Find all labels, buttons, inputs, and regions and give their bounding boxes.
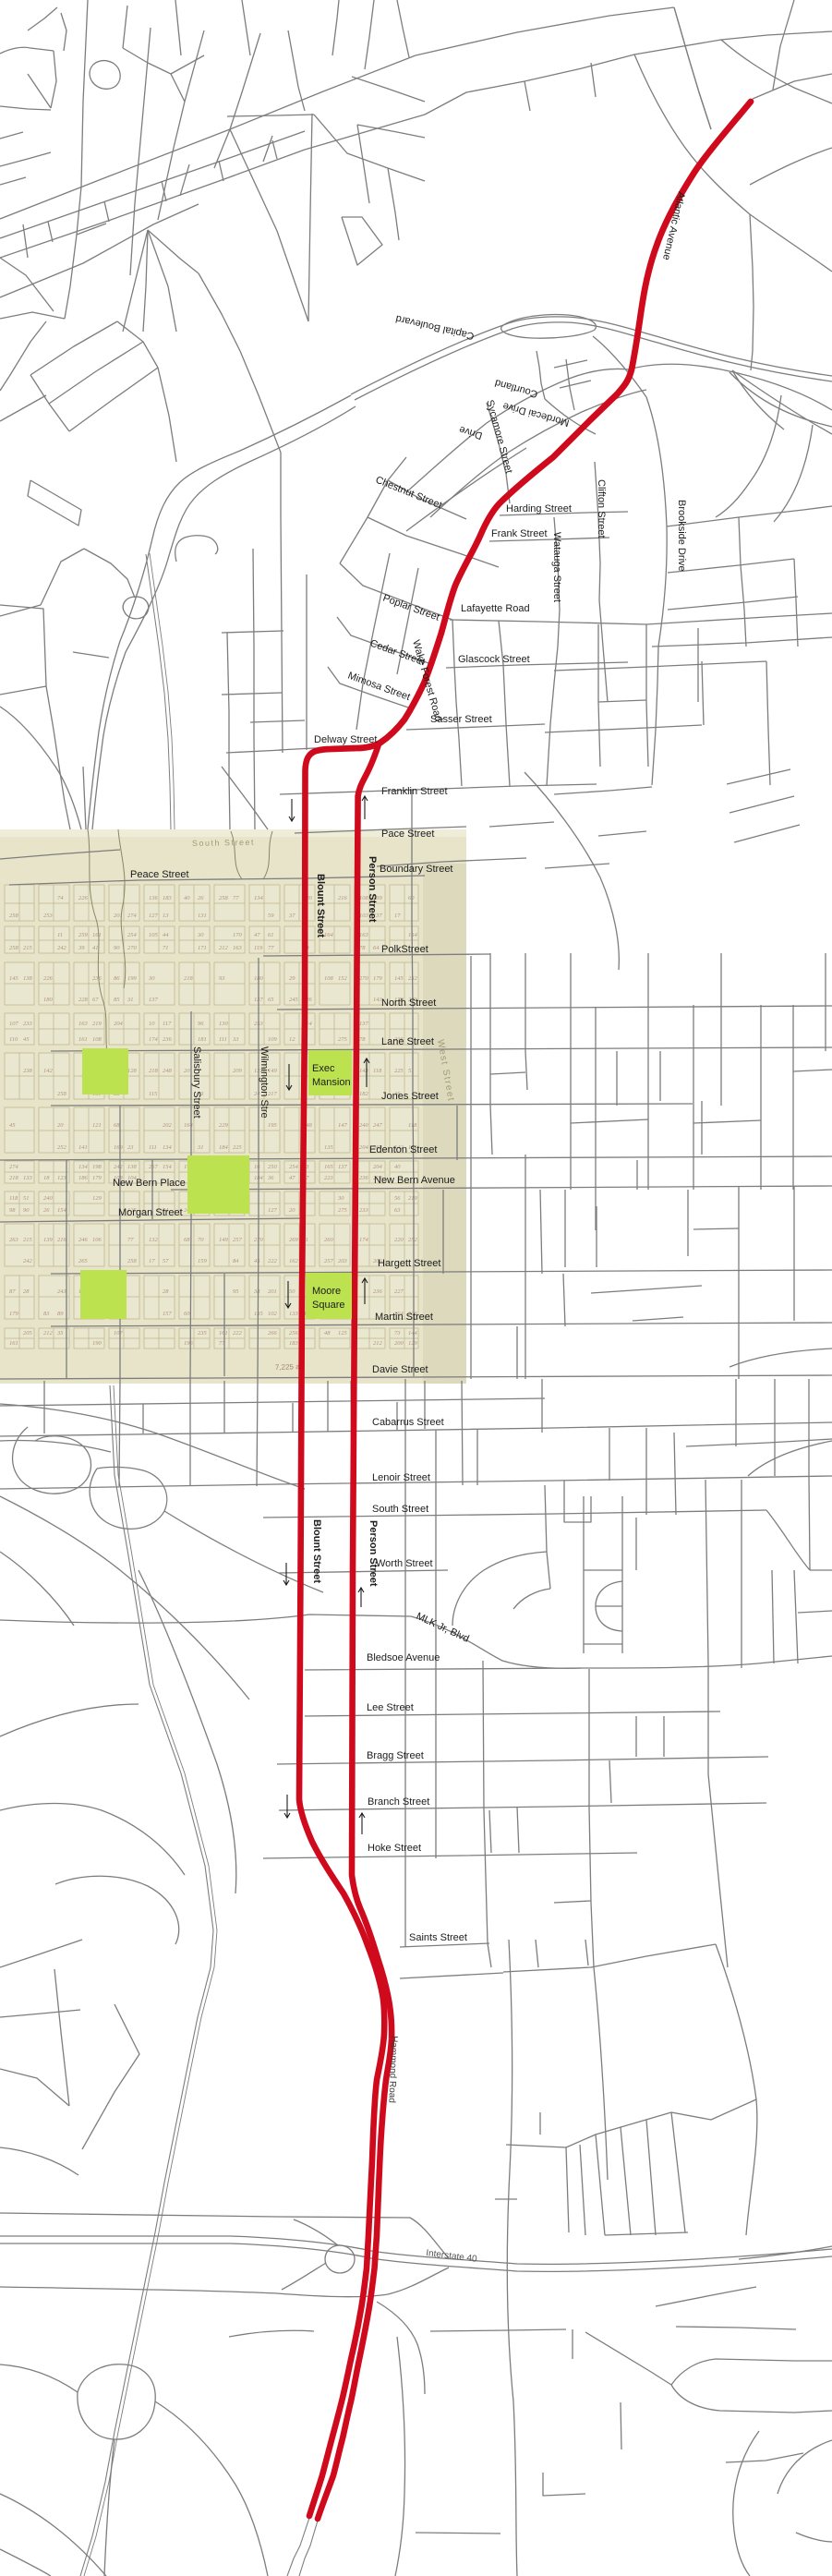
- svg-text:181: 181: [198, 1036, 207, 1043]
- svg-text:28: 28: [23, 1288, 30, 1295]
- svg-text:183: 183: [163, 895, 173, 901]
- svg-text:30: 30: [337, 1195, 344, 1202]
- svg-text:Salisbury Street: Salisbury Street: [191, 1046, 202, 1119]
- svg-text:248: 248: [163, 1068, 173, 1074]
- svg-text:180: 180: [43, 997, 54, 1003]
- svg-text:137: 137: [359, 1021, 369, 1027]
- svg-text:Lane Street: Lane Street: [381, 1036, 434, 1047]
- svg-text:12: 12: [289, 1036, 295, 1043]
- svg-text:47: 47: [254, 932, 260, 938]
- svg-text:108: 108: [324, 975, 334, 982]
- svg-text:246: 246: [78, 1237, 89, 1243]
- svg-text:203: 203: [338, 1258, 348, 1264]
- svg-text:233: 233: [359, 1207, 369, 1214]
- svg-text:56: 56: [394, 1195, 401, 1202]
- svg-text:77: 77: [268, 945, 274, 951]
- svg-text:Bragg Street: Bragg Street: [367, 1750, 424, 1761]
- svg-text:45: 45: [9, 1122, 16, 1129]
- svg-text:218: 218: [9, 1175, 19, 1181]
- svg-text:78: 78: [359, 945, 366, 951]
- svg-text:Person Street: Person Street: [368, 1520, 379, 1587]
- svg-text:212: 212: [219, 945, 229, 951]
- svg-text:111: 111: [149, 1144, 157, 1151]
- svg-text:161: 161: [92, 932, 102, 938]
- svg-text:40: 40: [394, 1164, 401, 1170]
- svg-text:Edenton Street: Edenton Street: [369, 1144, 437, 1155]
- svg-text:225: 225: [233, 1144, 243, 1151]
- svg-text:Bledsoe Avenue: Bledsoe Avenue: [367, 1652, 440, 1663]
- svg-text:North Street: North Street: [381, 998, 436, 1009]
- svg-text:252: 252: [408, 1237, 418, 1243]
- svg-text:226: 226: [43, 975, 54, 982]
- svg-text:252: 252: [57, 1144, 67, 1151]
- svg-text:Glascock Street: Glascock Street: [458, 654, 530, 665]
- svg-text:Moore: Moore: [312, 1286, 341, 1297]
- svg-text:200: 200: [394, 1340, 404, 1347]
- svg-text:67: 67: [92, 997, 99, 1003]
- svg-text:183: 183: [289, 1340, 299, 1347]
- svg-text:48: 48: [324, 1330, 331, 1336]
- svg-text:235: 235: [198, 1330, 208, 1336]
- svg-text:83: 83: [43, 1311, 50, 1317]
- svg-text:138: 138: [23, 975, 33, 982]
- svg-text:Blount Street: Blount Street: [315, 874, 326, 937]
- svg-text:204: 204: [114, 1021, 124, 1027]
- svg-text:95: 95: [233, 1288, 239, 1295]
- svg-text:65: 65: [268, 997, 274, 1003]
- svg-text:Clifton Street: Clifton Street: [596, 479, 607, 538]
- svg-text:107: 107: [9, 1021, 19, 1027]
- svg-text:Brookside Drive: Brookside Drive: [676, 500, 687, 572]
- svg-text:162: 162: [289, 1258, 299, 1264]
- svg-text:38: 38: [253, 1288, 260, 1295]
- svg-text:218: 218: [149, 1068, 159, 1074]
- svg-text:154: 154: [57, 1207, 67, 1214]
- svg-text:Morgan Street: Morgan Street: [118, 1207, 183, 1218]
- svg-text:258: 258: [57, 1091, 67, 1097]
- svg-text:60: 60: [184, 1311, 190, 1317]
- svg-text:161: 161: [219, 1330, 228, 1336]
- svg-text:134: 134: [163, 1144, 173, 1151]
- svg-text:Delway Street: Delway Street: [314, 734, 377, 745]
- svg-text:257: 257: [149, 1164, 159, 1170]
- svg-text:74: 74: [57, 895, 64, 901]
- svg-text:161: 161: [78, 1036, 88, 1043]
- svg-text:263: 263: [9, 1237, 19, 1243]
- svg-text:Martin Street: Martin Street: [375, 1312, 433, 1323]
- svg-text:222: 222: [233, 1330, 243, 1336]
- svg-text:179: 179: [9, 1311, 19, 1317]
- svg-text:109: 109: [268, 1036, 278, 1043]
- svg-text:129: 129: [408, 1340, 418, 1347]
- svg-text:236: 236: [373, 1288, 383, 1295]
- svg-text:30: 30: [197, 932, 204, 938]
- svg-text:219: 219: [408, 1195, 418, 1202]
- svg-text:142: 142: [43, 1068, 54, 1074]
- svg-text:Hargett Street: Hargett Street: [378, 1258, 440, 1269]
- svg-text:Pace Street: Pace Street: [381, 828, 434, 840]
- svg-text:220: 220: [394, 1237, 404, 1243]
- svg-text:50: 50: [289, 1288, 295, 1295]
- svg-text:20: 20: [57, 1122, 64, 1129]
- svg-text:143: 143: [359, 1068, 369, 1074]
- svg-text:222: 222: [268, 1258, 278, 1264]
- svg-text:110: 110: [9, 1036, 18, 1043]
- svg-text:133: 133: [23, 1175, 33, 1181]
- svg-text:212: 212: [43, 1330, 54, 1336]
- svg-text:171: 171: [198, 945, 207, 951]
- svg-text:164: 164: [184, 1122, 194, 1129]
- svg-text:149: 149: [219, 1237, 229, 1243]
- svg-text:229: 229: [219, 1122, 229, 1129]
- svg-text:98: 98: [9, 1207, 16, 1214]
- svg-text:215: 215: [23, 945, 33, 951]
- svg-text:163: 163: [78, 1021, 89, 1027]
- svg-text:137: 137: [149, 997, 159, 1003]
- svg-text:Franklin Street: Franklin Street: [381, 786, 448, 797]
- svg-text:139: 139: [43, 1237, 54, 1243]
- svg-text:77: 77: [233, 895, 239, 901]
- svg-text:216: 216: [338, 895, 348, 901]
- svg-text:96: 96: [198, 1021, 204, 1027]
- svg-text:199: 199: [127, 975, 138, 982]
- svg-text:73: 73: [394, 1330, 401, 1336]
- svg-text:215: 215: [23, 1237, 33, 1243]
- svg-text:165: 165: [324, 1164, 334, 1170]
- svg-text:147: 147: [338, 1122, 348, 1129]
- svg-text:105: 105: [149, 932, 159, 938]
- svg-text:44: 44: [163, 932, 169, 938]
- svg-text:Peace Street: Peace Street: [130, 869, 189, 880]
- svg-text:108: 108: [92, 1036, 102, 1043]
- svg-text:71: 71: [163, 945, 169, 951]
- svg-text:141: 141: [78, 1144, 88, 1151]
- svg-text:205: 205: [23, 1330, 33, 1336]
- svg-text:157: 157: [163, 1311, 173, 1317]
- svg-text:154: 154: [408, 932, 418, 938]
- svg-text:137: 137: [338, 1164, 348, 1170]
- svg-text:145: 145: [394, 975, 404, 982]
- svg-text:Harding Street: Harding Street: [506, 503, 572, 514]
- svg-text:204: 204: [373, 1164, 383, 1170]
- svg-text:Exec: Exec: [312, 1063, 335, 1074]
- svg-text:119: 119: [254, 945, 263, 951]
- svg-text:256: 256: [289, 1330, 299, 1336]
- svg-text:45: 45: [23, 1036, 30, 1043]
- svg-text:70: 70: [198, 1237, 204, 1243]
- svg-text:269: 269: [289, 1237, 299, 1243]
- svg-text:127: 127: [268, 1207, 278, 1214]
- svg-text:61: 61: [268, 932, 274, 938]
- svg-text:Branch Street: Branch Street: [368, 1796, 429, 1808]
- svg-text:242: 242: [114, 1164, 124, 1170]
- svg-text:258: 258: [219, 895, 229, 901]
- svg-text:51: 51: [23, 1195, 30, 1202]
- svg-text:36: 36: [267, 1175, 274, 1181]
- svg-text:247: 247: [373, 1122, 383, 1129]
- svg-text:127: 127: [149, 913, 159, 919]
- svg-text:144: 144: [408, 1330, 418, 1336]
- svg-text:270: 270: [127, 945, 138, 951]
- svg-text:29: 29: [289, 975, 295, 982]
- svg-text:11: 11: [57, 932, 63, 938]
- svg-text:123: 123: [57, 1175, 67, 1181]
- svg-text:128: 128: [127, 1068, 138, 1074]
- svg-text:68: 68: [184, 1237, 190, 1243]
- svg-text:226: 226: [78, 895, 89, 901]
- svg-text:Worth Street: Worth Street: [376, 1558, 433, 1569]
- svg-text:64: 64: [373, 945, 380, 951]
- svg-text:145: 145: [9, 975, 19, 982]
- svg-text:Lee Street: Lee Street: [367, 1702, 414, 1713]
- svg-text:16: 16: [254, 1164, 260, 1170]
- svg-text:18: 18: [43, 1175, 50, 1181]
- svg-text:265: 265: [78, 1258, 89, 1264]
- svg-text:26: 26: [43, 1207, 50, 1214]
- svg-text:275: 275: [338, 1207, 348, 1214]
- svg-text:118: 118: [373, 1068, 382, 1074]
- svg-text:Mansion: Mansion: [312, 1077, 351, 1088]
- svg-text:161: 161: [9, 1340, 18, 1347]
- svg-text:209: 209: [233, 1068, 243, 1074]
- svg-text:68: 68: [114, 1122, 120, 1129]
- svg-text:266: 266: [268, 1330, 278, 1336]
- svg-text:Saints Street: Saints Street: [409, 1932, 467, 1943]
- svg-text:Boundary Street: Boundary Street: [380, 864, 453, 875]
- svg-text:13: 13: [163, 913, 169, 919]
- svg-text:242: 242: [23, 1258, 33, 1264]
- svg-text:169: 169: [114, 1144, 124, 1151]
- svg-text:Frank Street: Frank Street: [491, 528, 548, 539]
- svg-text:236: 236: [92, 975, 102, 982]
- svg-text:57: 57: [163, 1258, 169, 1264]
- svg-text:59: 59: [268, 913, 274, 919]
- svg-text:New Bern Avenue: New Bern Avenue: [374, 1175, 455, 1186]
- svg-text:39: 39: [78, 945, 85, 951]
- svg-text:Hoke Street: Hoke Street: [368, 1843, 421, 1854]
- svg-text:85: 85: [114, 997, 120, 1003]
- svg-text:117: 117: [163, 1021, 172, 1027]
- svg-text:40: 40: [184, 895, 190, 901]
- svg-text:274: 274: [9, 1164, 19, 1170]
- svg-text:17: 17: [394, 913, 401, 919]
- svg-text:136: 136: [149, 895, 159, 901]
- svg-text:179: 179: [373, 975, 383, 982]
- svg-text:30: 30: [148, 975, 155, 982]
- svg-text:253: 253: [43, 913, 54, 919]
- svg-text:Lenoir Street: Lenoir Street: [372, 1472, 430, 1483]
- svg-text:275: 275: [338, 1036, 348, 1043]
- svg-text:86: 86: [114, 975, 120, 982]
- svg-text:Wilmington Stre: Wilmington Stre: [259, 1046, 270, 1119]
- svg-text:Cabarrus Street: Cabarrus Street: [372, 1417, 444, 1428]
- svg-text:90: 90: [23, 1207, 30, 1214]
- svg-text:Davie Street: Davie Street: [372, 1364, 428, 1375]
- svg-text:170: 170: [233, 932, 243, 938]
- svg-text:28: 28: [163, 1288, 169, 1295]
- svg-text:223: 223: [324, 1175, 334, 1181]
- svg-text:20: 20: [184, 1068, 190, 1074]
- svg-text:174: 174: [149, 1036, 159, 1043]
- svg-text:Person Street: Person Street: [367, 856, 378, 923]
- svg-text:87: 87: [9, 1288, 16, 1295]
- svg-text:121: 121: [92, 1122, 102, 1129]
- svg-text:182: 182: [359, 1091, 369, 1097]
- svg-text:135: 135: [324, 1144, 334, 1151]
- svg-text:250: 250: [268, 1164, 278, 1170]
- svg-text:190: 190: [92, 1340, 102, 1347]
- svg-text:257: 257: [233, 1237, 243, 1243]
- svg-text:216: 216: [57, 1237, 67, 1243]
- svg-text:125: 125: [338, 1330, 348, 1336]
- svg-text:PolkStreet: PolkStreet: [381, 944, 428, 955]
- svg-text:Sasser Street: Sasser Street: [430, 714, 492, 725]
- svg-text:111: 111: [219, 1036, 227, 1043]
- svg-text:184: 184: [219, 1144, 229, 1151]
- svg-text:63: 63: [394, 1207, 401, 1214]
- svg-text:154: 154: [163, 1164, 173, 1170]
- svg-text:Watauga Street: Watauga Street: [551, 532, 562, 602]
- svg-text:77: 77: [127, 1237, 134, 1243]
- svg-text:115: 115: [149, 1091, 158, 1097]
- svg-text:17: 17: [149, 1258, 155, 1264]
- svg-text:31: 31: [197, 1144, 204, 1151]
- svg-text:89: 89: [57, 1311, 64, 1317]
- svg-text:Blount Street: Blount Street: [311, 1519, 322, 1583]
- svg-text:204: 204: [359, 1144, 369, 1151]
- svg-text:23: 23: [127, 1144, 134, 1151]
- svg-text:174: 174: [359, 1237, 369, 1243]
- svg-text:240: 240: [43, 1195, 54, 1202]
- svg-text:163: 163: [359, 932, 369, 938]
- svg-text:132: 132: [149, 1237, 159, 1243]
- svg-text:245: 245: [289, 997, 299, 1003]
- svg-text:163: 163: [233, 945, 243, 951]
- svg-text:135: 135: [254, 1311, 264, 1317]
- svg-text:129: 129: [92, 1195, 102, 1202]
- svg-text:257: 257: [324, 1258, 334, 1264]
- svg-text:45: 45: [254, 1258, 260, 1264]
- svg-text:227: 227: [394, 1288, 404, 1295]
- svg-text:10: 10: [149, 1021, 155, 1027]
- svg-text:133: 133: [289, 1311, 299, 1317]
- svg-text:258: 258: [9, 913, 19, 919]
- svg-text:New Bern Place: New Bern Place: [113, 1178, 186, 1189]
- svg-text:7,225 a: 7,225 a: [275, 1362, 301, 1372]
- svg-text:107: 107: [114, 1330, 124, 1336]
- svg-text:78: 78: [359, 1036, 366, 1043]
- svg-text:196: 196: [184, 1340, 194, 1347]
- svg-text:Jones Street: Jones Street: [381, 1091, 439, 1102]
- svg-text:254: 254: [127, 932, 138, 938]
- svg-text:31: 31: [127, 997, 134, 1003]
- svg-text:102: 102: [268, 1311, 278, 1317]
- svg-text:195: 195: [268, 1122, 278, 1129]
- svg-text:134: 134: [254, 895, 264, 901]
- svg-text:35: 35: [56, 1330, 64, 1336]
- svg-text:242: 242: [57, 945, 67, 951]
- svg-text:201: 201: [268, 1288, 277, 1295]
- svg-text:138: 138: [127, 1164, 138, 1170]
- svg-text:118: 118: [9, 1195, 18, 1202]
- svg-text:106: 106: [92, 1237, 102, 1243]
- svg-text:179: 179: [92, 1175, 102, 1181]
- svg-text:20: 20: [289, 1207, 295, 1214]
- svg-text:233: 233: [23, 1021, 33, 1027]
- svg-text:47: 47: [289, 1175, 295, 1181]
- svg-text:258: 258: [9, 945, 19, 951]
- svg-text:93: 93: [219, 975, 225, 982]
- svg-text:254: 254: [289, 1164, 299, 1170]
- svg-text:Lafayette Road: Lafayette Road: [461, 603, 530, 614]
- svg-text:37: 37: [288, 913, 295, 919]
- svg-text:41: 41: [92, 945, 99, 951]
- svg-text:Square: Square: [312, 1300, 344, 1311]
- svg-text:198: 198: [92, 1164, 102, 1170]
- svg-text:130: 130: [219, 1021, 229, 1027]
- svg-text:186: 186: [78, 1175, 89, 1181]
- svg-text:134: 134: [78, 1164, 89, 1170]
- svg-text:26: 26: [198, 895, 204, 901]
- svg-text:South Street: South Street: [192, 838, 255, 848]
- svg-text:236: 236: [163, 1036, 173, 1043]
- svg-text:238: 238: [23, 1068, 33, 1074]
- svg-text:202: 202: [163, 1122, 173, 1129]
- svg-text:225: 225: [394, 1068, 404, 1074]
- svg-text:33: 33: [232, 1036, 239, 1043]
- svg-text:212: 212: [373, 1340, 383, 1347]
- svg-text:258: 258: [127, 1258, 138, 1264]
- svg-text:228: 228: [78, 997, 89, 1003]
- svg-text:219: 219: [92, 1021, 102, 1027]
- svg-text:159: 159: [198, 1258, 208, 1264]
- svg-text:84: 84: [233, 1258, 239, 1264]
- svg-text:240: 240: [359, 1122, 369, 1129]
- svg-text:131: 131: [198, 913, 207, 919]
- svg-text:270: 270: [359, 975, 369, 982]
- svg-text:236: 236: [359, 1175, 369, 1181]
- svg-text:218: 218: [184, 975, 194, 982]
- svg-text:South Street: South Street: [372, 1504, 428, 1515]
- svg-text:260: 260: [324, 1237, 334, 1243]
- svg-text:274: 274: [127, 913, 138, 919]
- svg-text:90: 90: [114, 945, 120, 951]
- svg-text:152: 152: [338, 975, 348, 982]
- svg-text:259: 259: [78, 932, 89, 938]
- svg-text:243: 243: [57, 1288, 67, 1295]
